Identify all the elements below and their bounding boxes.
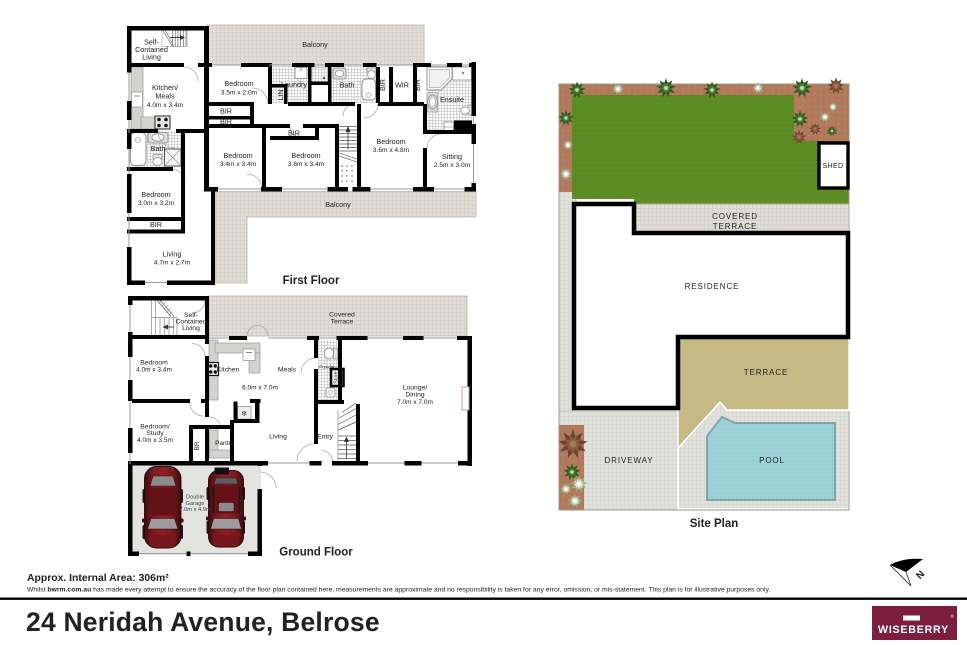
svg-text:Garage: Garage [186, 501, 205, 507]
svg-text:COVERED: COVERED [712, 212, 758, 221]
svg-text:2.5m x 3.0m: 2.5m x 3.0m [434, 162, 471, 169]
svg-text:7.0m x 7.0m: 7.0m x 7.0m [397, 399, 433, 406]
svg-text:BIR: BIR [378, 79, 387, 91]
svg-text:Entry: Entry [317, 434, 333, 441]
svg-text:First Floor: First Floor [283, 275, 340, 287]
svg-text:Approx. Internal Area: 306m²: Approx. Internal Area: 306m² [27, 573, 169, 584]
svg-text:POOL: POOL [759, 456, 785, 465]
svg-text:Living: Living [163, 250, 182, 259]
svg-text:BR: BR [194, 441, 201, 450]
svg-text:BIR: BIR [220, 117, 232, 126]
svg-text:WIR: WIR [395, 81, 409, 90]
svg-text:Living: Living [269, 434, 287, 441]
svg-text:BIR: BIR [220, 107, 232, 116]
svg-text:Double: Double [186, 495, 204, 501]
svg-text:4.0m x 3.5m: 4.0m x 3.5m [137, 437, 173, 444]
svg-text:Site Plan: Site Plan [690, 518, 739, 530]
svg-text:Dining: Dining [405, 392, 424, 399]
svg-text:Bedroom: Bedroom [376, 137, 405, 146]
svg-text:4.7m x 2.7m: 4.7m x 2.7m [154, 260, 191, 267]
svg-text:DRIVEWAY: DRIVEWAY [605, 456, 654, 465]
svg-text:3.5m x 2.0m: 3.5m x 2.0m [221, 90, 258, 97]
svg-text:3.0m x 3.2m: 3.0m x 3.2m [138, 200, 175, 207]
svg-text:Store: Store [333, 371, 339, 384]
svg-text:Bedroom: Bedroom [141, 190, 170, 199]
svg-text:TERRACE: TERRACE [713, 222, 758, 231]
svg-text:Lounge/: Lounge/ [403, 385, 428, 392]
svg-text:3.6m x 4.8m: 3.6m x 4.8m [373, 147, 410, 154]
svg-text:Living: Living [142, 52, 161, 61]
svg-text:Ensuite: Ensuite [440, 95, 464, 104]
svg-text:24 Neridah Avenue, Belrose: 24 Neridah Avenue, Belrose [26, 607, 380, 637]
svg-text:6.0m x 7.0m: 6.0m x 7.0m [242, 385, 278, 392]
svg-text:Laundry: Laundry [281, 80, 307, 89]
svg-text:4.0m x 3.4m: 4.0m x 3.4m [136, 366, 172, 373]
svg-text:Sitting: Sitting [442, 152, 462, 161]
svg-text:BIR: BIR [288, 129, 300, 138]
svg-text:❄: ❄ [241, 409, 247, 418]
svg-text:Powder: Powder [319, 365, 335, 370]
svg-text:RESIDENCE: RESIDENCE [685, 282, 740, 291]
svg-text:7.0m x 4.9m: 7.0m x 4.9m [179, 507, 211, 513]
svg-text:Living: Living [182, 325, 200, 332]
svg-text:3.6m x 3.4m: 3.6m x 3.4m [288, 161, 325, 168]
svg-text:Covered: Covered [329, 312, 355, 319]
svg-text:BIR: BIR [150, 220, 162, 229]
svg-text:Balcony: Balcony [302, 40, 328, 49]
svg-text:4.0m x 3.4m: 4.0m x 3.4m [147, 102, 184, 109]
svg-text:Bath: Bath [151, 144, 166, 153]
svg-text:Bath: Bath [340, 81, 355, 90]
svg-text:Bedroom: Bedroom [291, 151, 320, 160]
svg-text:SHED: SHED [823, 163, 844, 170]
svg-text:Pantry: Pantry [215, 440, 235, 447]
svg-text:Meals: Meals [155, 92, 175, 101]
svg-text:Meals: Meals [278, 367, 297, 374]
svg-text:LIN: LIN [276, 89, 285, 100]
svg-text:Kitchen: Kitchen [217, 367, 240, 374]
svg-text:BIR: BIR [413, 79, 422, 91]
svg-text:Terrace: Terrace [331, 319, 354, 326]
svg-text:TERRACE: TERRACE [744, 368, 789, 377]
svg-text:Whilst bwrm.com.au has made ev: Whilst bwrm.com.au has made every attemp… [27, 587, 770, 594]
svg-text:3.4m x 3.4m: 3.4m x 3.4m [220, 161, 257, 168]
svg-text:Bedroom: Bedroom [223, 151, 252, 160]
svg-text:Ground Floor: Ground Floor [279, 547, 353, 559]
svg-text:Balcony: Balcony [325, 200, 351, 209]
svg-text:Bedroom: Bedroom [224, 79, 253, 88]
svg-text:WISEBERRY: WISEBERRY [878, 624, 949, 636]
